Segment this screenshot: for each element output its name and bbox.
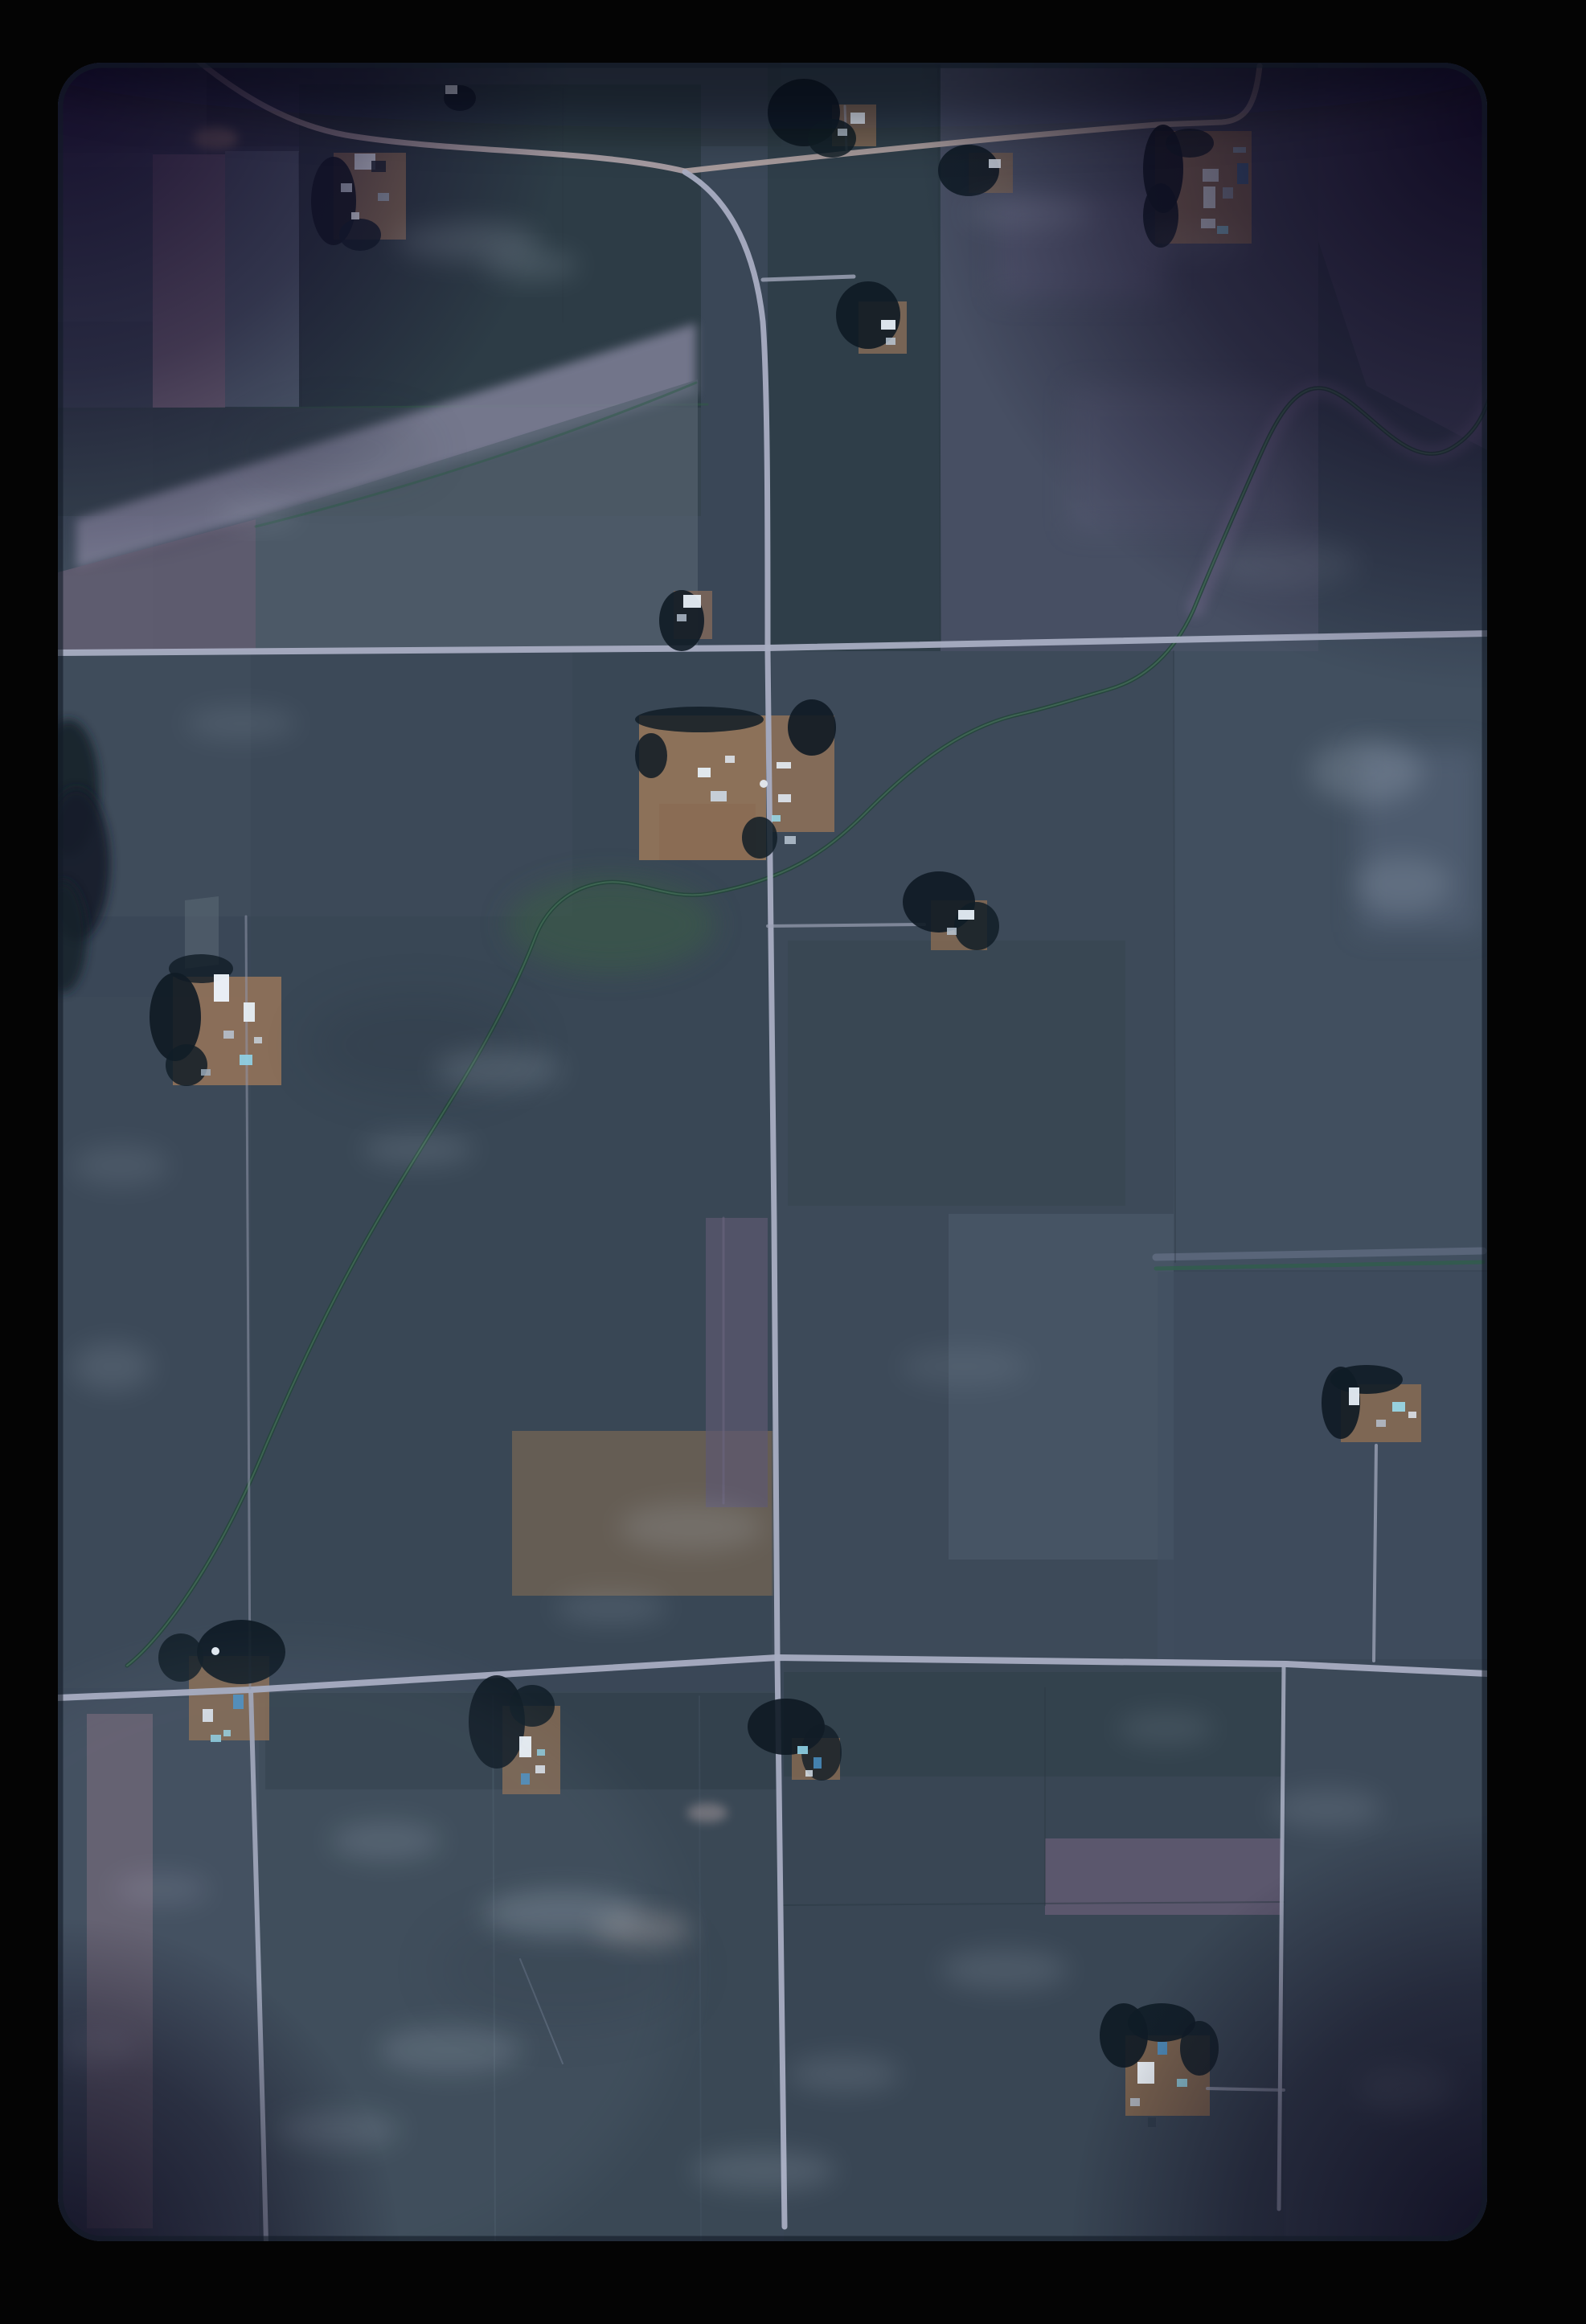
field-light-L [949, 1214, 1174, 1560]
building-west-small [254, 1037, 262, 1043]
field-east-teal [788, 941, 1125, 1206]
cloud-wisp-23 [788, 2056, 900, 2092]
building-east-cyan [1392, 1402, 1405, 1412]
building-south2-blue [813, 1757, 822, 1769]
building-west-shed [201, 1069, 211, 1076]
silo-central [760, 780, 768, 788]
trees-central-4 [788, 699, 836, 756]
aerial-photo [0, 0, 1586, 2324]
trees-east-farm-ring-2 [1330, 1365, 1403, 1394]
road-spur-creekfarm [768, 924, 924, 926]
cloud-wisp-27 [185, 707, 297, 740]
building-central-east-2 [778, 794, 791, 802]
cloud-wisp-28 [72, 1146, 169, 1186]
trees-central-2 [635, 733, 667, 778]
cloud-wisp-pink-dot [687, 1803, 727, 1822]
cloud-wisp-10 [72, 1342, 153, 1391]
photo-content [0, 0, 1586, 2324]
building-spur-barn [881, 320, 895, 330]
cloud-wisp-17 [691, 2150, 836, 2191]
building-east-barn [1349, 1387, 1359, 1405]
building-central-shed [725, 756, 735, 763]
trees-creek-farm-2 [954, 902, 999, 950]
building-topcenter-shed [838, 129, 847, 136]
trees-west-farm-2 [166, 1044, 207, 1086]
building-central-east-cyan [772, 815, 781, 822]
building-central-east-3 [785, 836, 796, 844]
building-central-east-1 [777, 762, 791, 769]
cloud-wisp-12 [555, 1592, 667, 1624]
building-midwest-shed [677, 614, 686, 621]
film-slide-mount [0, 0, 1586, 2324]
field-mauve-strips [706, 1218, 768, 1507]
cloud-wisp-8 [434, 1049, 563, 1089]
cloud-wisp-6 [1310, 740, 1423, 804]
cloud-wisp-26 [900, 1346, 1029, 1387]
building-west-grey [223, 1031, 234, 1039]
building-spur-shed [886, 338, 895, 345]
building-west-cyan [240, 1055, 252, 1065]
building-central-house [698, 768, 711, 777]
building-east-grey [1376, 1420, 1386, 1427]
cloud-wisp-9 [362, 1133, 474, 1166]
building-west-barn [214, 974, 229, 1002]
trees-central-row [635, 707, 764, 732]
cloud-wisp-20 [1117, 1712, 1214, 1744]
farmstead-central-yard-south [659, 804, 756, 860]
cloud-wisp-7 [1354, 856, 1451, 912]
building-creekfarm-shed [947, 928, 957, 935]
field-mid-left-lower [58, 997, 251, 1688]
cloud-wisp-18 [941, 1949, 1069, 1990]
building-east-white [1408, 1412, 1416, 1418]
trees-central-3 [742, 817, 777, 859]
field-below-hedge-right [1158, 1272, 1487, 1659]
building-south2-white [805, 1770, 813, 1777]
field-right-column [1174, 635, 1487, 1270]
building-midwest-barn [683, 595, 701, 608]
building-west-white [244, 1002, 255, 1022]
building-central-barn [711, 791, 727, 801]
building-creekfarm-barn [958, 910, 974, 920]
creek-green-zone [506, 876, 715, 973]
cloud-wisp-19 [1270, 1789, 1383, 1829]
building-south2-cyan [797, 1746, 808, 1754]
cloud-wisp-11 [619, 1503, 764, 1551]
